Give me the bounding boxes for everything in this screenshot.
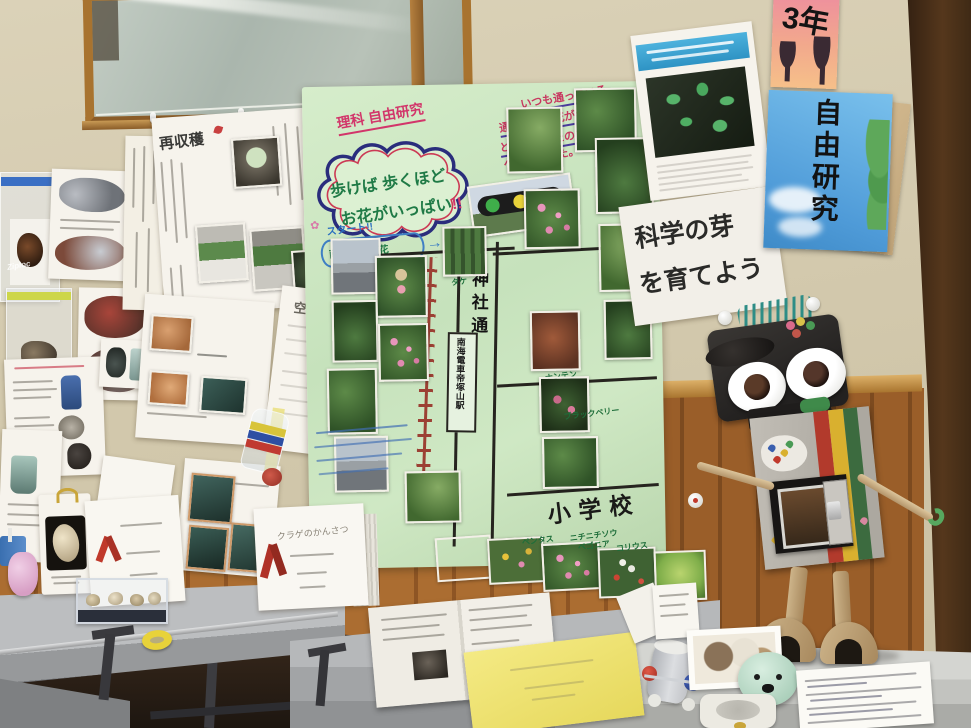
garden-photo: [405, 470, 462, 523]
jellyfish-title: クラゲのかんさつ: [276, 522, 349, 542]
bag-seal-strip: [7, 292, 71, 300]
heart-cloud-sticker: [759, 433, 809, 474]
cloud-title-bangs: !!: [451, 195, 464, 213]
flower-photo: [524, 188, 581, 249]
science-line2: を育てよう: [637, 248, 766, 301]
red-ribbon-bow: [259, 543, 287, 578]
moon-photo-frame: [45, 515, 87, 570]
flower-photo: [435, 534, 494, 582]
robot-leg: [833, 571, 852, 628]
pompom: [792, 329, 801, 338]
moon-photo: [50, 522, 82, 564]
robot-foot: [820, 622, 878, 664]
plant-photo: [378, 323, 429, 382]
seedling-report-poster: [630, 21, 771, 201]
copper-plate-photo: [149, 314, 193, 353]
blackberry-photo: [539, 376, 590, 433]
sprout-photo: [195, 222, 249, 283]
shell: [148, 592, 161, 605]
tree-photo: [542, 436, 599, 489]
screen-photo: [188, 473, 236, 525]
free-research-poster: 自由研究: [763, 90, 892, 252]
gold-dot: [734, 722, 746, 728]
plant-photo: [506, 107, 563, 174]
pupil: [742, 372, 771, 401]
antenna-ball: [806, 297, 820, 311]
white-cap-wheel: [648, 694, 661, 707]
green-map-poster: 理科 自由研究 歩けば 歩くほど お花がいっぱい!! いつも通っている 通学路の…: [302, 81, 666, 569]
palm-silhouette: [773, 41, 802, 82]
sprout-photo: [231, 136, 282, 189]
copper-plate-photo: [147, 370, 189, 407]
robot-hand-wrench: [925, 505, 948, 529]
notebook-photo: [412, 649, 448, 680]
station-box: 南海電車帝塚山駅: [446, 332, 478, 433]
plant-photo: [332, 300, 379, 363]
pompom: [796, 317, 805, 326]
robot-hand-ball: [688, 493, 703, 508]
ring-stand: [700, 694, 776, 728]
bottle-photo: [61, 375, 82, 410]
craft-photo: [67, 443, 92, 470]
bamboo-photo: [442, 226, 487, 277]
record-grid-paper: [796, 661, 934, 728]
ring-hole: [716, 700, 760, 720]
report-header-band: [636, 32, 750, 71]
science-line1: 科学の芽: [632, 206, 736, 256]
pupil: [801, 359, 830, 388]
case-base: [78, 610, 166, 622]
door-clip-handle: [827, 501, 842, 520]
window-frame-shadow: [92, 0, 119, 61]
hand-red-dot: [693, 498, 698, 503]
grade3-poster: 3年: [770, 0, 839, 89]
reharvest-title: 再収穫: [158, 128, 205, 154]
foot-arch: [835, 639, 862, 664]
shrine-street-label: 神社通: [465, 270, 491, 339]
bottle-cap: [262, 468, 282, 486]
can-photo-cluster: [58, 177, 125, 213]
palm-silhouette: [806, 36, 836, 85]
shell: [130, 594, 144, 606]
plush-nose: [762, 684, 774, 693]
seedling-photo: [646, 66, 755, 158]
teapot-photo: [105, 347, 127, 378]
plant-label-bamboo: タケ: [451, 275, 468, 288]
station-label: 南海電車帝塚山駅: [455, 337, 465, 409]
jellyfish-booklet: クラゲのかんさつ: [253, 503, 368, 611]
window-light-streak: [118, 0, 428, 34]
classroom-display-wall-photo: Ziploc: [0, 0, 971, 728]
shell-display-case: [76, 578, 168, 624]
plant-photo: [327, 368, 378, 435]
red-star-doodle: [213, 125, 223, 135]
shell: [86, 594, 100, 606]
pen: [8, 528, 12, 542]
plush-eye: [754, 674, 760, 680]
red-ribbon-bow: [95, 533, 123, 561]
free-research-label: 自由研究: [802, 97, 846, 226]
map-road: [491, 242, 499, 550]
street-photo: [330, 238, 381, 295]
antenna-ball: [718, 311, 732, 325]
shell: [108, 592, 123, 605]
gold-clip: [56, 488, 79, 504]
white-cap-wheel: [682, 698, 695, 711]
nanten-photo: [530, 310, 581, 371]
pink-glass-bottle: [8, 552, 38, 596]
palm-leaves: [842, 119, 890, 230]
pompom: [806, 321, 815, 330]
bag-seal-strip: [1, 177, 59, 186]
grade-label: 3年: [779, 0, 833, 44]
flower-doodle: ✿: [310, 219, 319, 232]
screen-photo: [185, 525, 229, 572]
ribbon-tail: [105, 535, 122, 562]
garden-person-photo: [375, 255, 428, 318]
robot-door-frame: [768, 474, 853, 554]
glass-photo: [10, 455, 37, 494]
traffic-light-green: [485, 197, 501, 213]
cardboard-robot: [688, 295, 971, 680]
plush-eye: [776, 674, 782, 680]
screen-photo: [199, 376, 247, 415]
can-photo-cluster: [54, 235, 125, 271]
